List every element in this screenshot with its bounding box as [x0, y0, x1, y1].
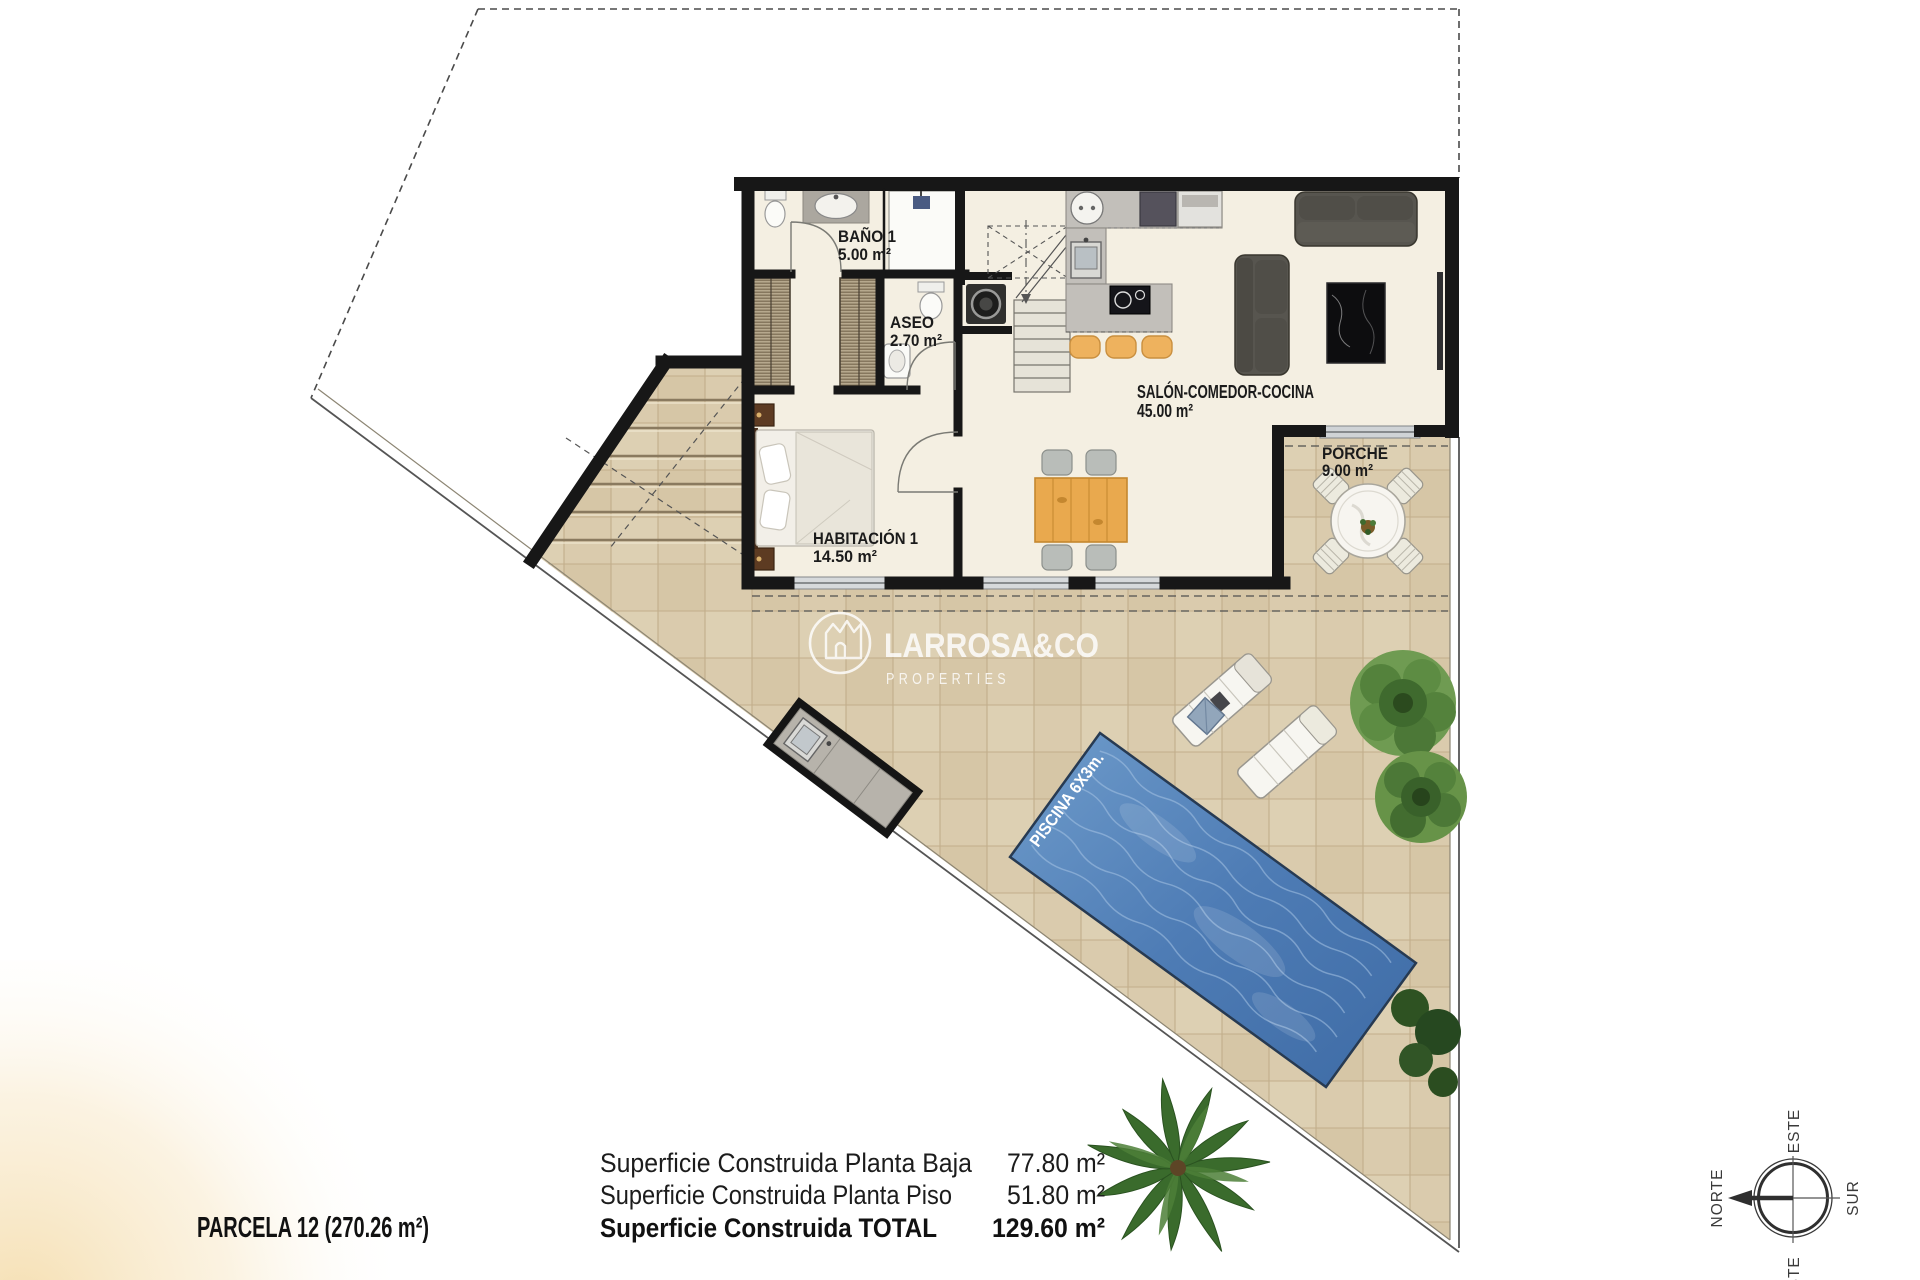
- room-area-bano: 5.00 m²: [838, 245, 891, 264]
- summary-row-value-total: 129.60 m²: [992, 1213, 1105, 1243]
- washer-niche: [958, 276, 1012, 330]
- sofa: [1295, 192, 1417, 246]
- parcel-label: PARCELA 12 (270.26 m²): [197, 1212, 429, 1244]
- room-area-salon: 45.00 m²: [1137, 400, 1193, 421]
- compass-rose: NORTE ESTE SUR OESTE: [1709, 1109, 1862, 1280]
- compass-west-label: OESTE: [1786, 1256, 1803, 1280]
- summary-row-label-total: Superficie Construida TOTAL: [600, 1213, 937, 1243]
- floor-plan-page: PISCINA 6X3m.: [0, 0, 1920, 1280]
- coffee-table-rug: [1327, 283, 1385, 363]
- compass-north-label: NORTE: [1709, 1169, 1726, 1228]
- summary-row-value: 51.80 m²: [1007, 1180, 1105, 1210]
- north-arrow-icon: [1728, 1190, 1752, 1206]
- compass-south-label: SUR: [1845, 1180, 1862, 1216]
- watermark-tagline: PROPERTIES: [886, 671, 1010, 688]
- summary-row-value: 77.80 m²: [1007, 1148, 1105, 1178]
- watermark-brand: LARROSA&CO: [884, 627, 1099, 665]
- tree: [1375, 751, 1467, 843]
- room-area-habitacion: 14.50 m²: [813, 547, 877, 566]
- room-area-aseo: 2.70 m²: [890, 331, 942, 350]
- room-label-bano: BAÑO 1: [838, 226, 896, 246]
- room-label-salon: SALÓN-COMEDOR-COCINA: [1137, 381, 1314, 402]
- floor-plan-drawing: PISCINA 6X3m.: [0, 0, 1920, 1280]
- sofa: [1235, 255, 1289, 375]
- tv: [1437, 272, 1443, 370]
- room-label-habitacion: HABITACIÓN 1: [813, 529, 918, 548]
- compass-east-label: ESTE: [1786, 1109, 1803, 1153]
- room-area-porche: 9.00 m²: [1322, 461, 1373, 480]
- summary-row-label: Superficie Construida Planta Baja: [600, 1148, 973, 1178]
- summary-row-label: Superficie Construida Planta Piso: [600, 1180, 952, 1210]
- room-label-aseo: ASEO: [890, 313, 934, 332]
